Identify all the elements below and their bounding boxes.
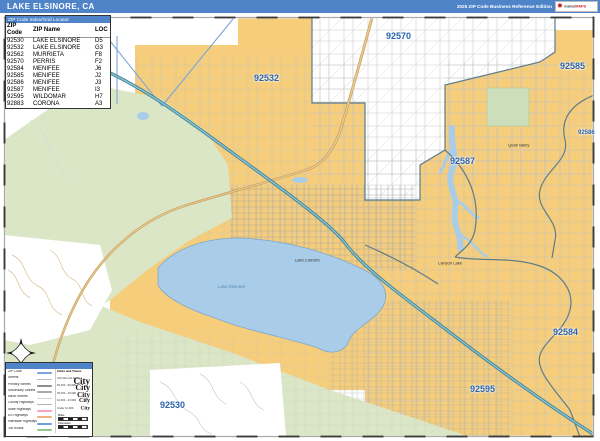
legend-symbols: ZIP Code Streets Primary Streets Seconda… (6, 369, 55, 433)
zip-label-92586: 92586 (578, 130, 595, 136)
primary-streets-sample (37, 385, 52, 387)
title-banner: LAKE ELSINORE, CA 2025 ZIP Code Business… (0, 0, 600, 13)
col-loc: LOC (94, 23, 110, 38)
county-highways-sample (37, 404, 52, 405)
edition-label: 2025 ZIP Code Business Reference Edition (457, 4, 552, 9)
marketmaps-logo: ✹ marketMAPS (555, 1, 598, 12)
zip-index-panel: ZIP Code Index/Grid Locator ZIP Code ZIP… (5, 15, 111, 109)
minor-streets-sample (37, 398, 52, 399)
us-highways-sample (37, 416, 52, 418)
city-class: 100,000 and AboveCity (56, 376, 92, 383)
secondary-streets-sample (37, 391, 52, 392)
table-row: 92562MURRIETAF8 (6, 52, 110, 59)
pond (137, 112, 149, 120)
city-label-canyon-lake: Canyon Lake (438, 262, 462, 266)
table-row: 92585MENIFEEJ2 (6, 73, 110, 80)
table-row: 92570PERRISF2 (6, 59, 110, 66)
table-row: 92586MENIFEEJ3 (6, 80, 110, 87)
map-page: 92570 92532 92585 92586 92587 92584 9259… (0, 0, 600, 441)
zip-label-92595: 92595 (470, 384, 495, 394)
table-row: 92530LAKE ELSINORED5 (6, 38, 110, 46)
water-label-lake-elsinore: Lake Elsinore (218, 285, 245, 290)
streets-sample (37, 379, 52, 380)
toll-roads-sample (37, 429, 52, 431)
miles-scale-bar (58, 417, 88, 421)
table-row: 92883CORONAA3 (6, 101, 110, 108)
zip-label-92585: 92585 (560, 61, 585, 71)
zip-boundary-sample (37, 372, 52, 374)
zip-index-table: ZIP Code ZIP Name LOC 92530LAKE ELSINORE… (6, 23, 110, 108)
kilometers-scale-bar (58, 425, 88, 429)
map-legend: Lake Elsinore, CA ZIP Code Map ZIP Code … (5, 362, 93, 437)
logo-star-icon: ✹ (557, 3, 563, 10)
zip-label-92587: 92587 (450, 156, 475, 166)
city-label-quail-valley: Quail Valley (508, 144, 529, 148)
zip-label-92570: 92570 (386, 31, 411, 41)
col-zip-code: ZIP Code (6, 23, 32, 38)
legend-item: Toll Roads (7, 427, 55, 433)
interstate-highways-sample (37, 423, 52, 425)
logo-brand: marketMAPS (564, 5, 586, 9)
page-title: LAKE ELSINORE, CA (7, 2, 95, 11)
zip-label-92532: 92532 (254, 73, 279, 83)
zip-index-title: ZIP Code Index/Grid Locator (6, 16, 110, 23)
state-highways-sample (37, 410, 52, 412)
city-class: Under 10,000City (56, 406, 92, 413)
zip-label-92584: 92584 (553, 327, 578, 337)
table-row: 92532LAKE ELSINOREG3 (6, 45, 110, 52)
col-zip-name: ZIP Name (32, 23, 94, 38)
pond (292, 177, 308, 183)
table-row: 92584MENIFEEJ6 (6, 66, 110, 73)
park-area (487, 88, 529, 126)
city-label-lake-elsinore: Lake Elsinore (295, 259, 320, 263)
table-row: 92587MENIFEEI3 (6, 87, 110, 94)
city-class: 25,000 - 49,999City (56, 391, 92, 398)
table-header-row: ZIP Code ZIP Name LOC (6, 23, 110, 38)
table-row: 92595WILDOMARH7 (6, 94, 110, 101)
legend-cities: Cities and Towns 100,000 and AboveCity 5… (55, 369, 92, 433)
city-class: 10,000 - 24,999City (56, 398, 92, 405)
city-class: 50,000 - 99,999City (56, 383, 92, 390)
zip-label-92530: 92530 (160, 400, 185, 410)
cities-header: Cities and Towns (56, 370, 74, 373)
scale-bars: Miles Kilometers (56, 413, 92, 429)
